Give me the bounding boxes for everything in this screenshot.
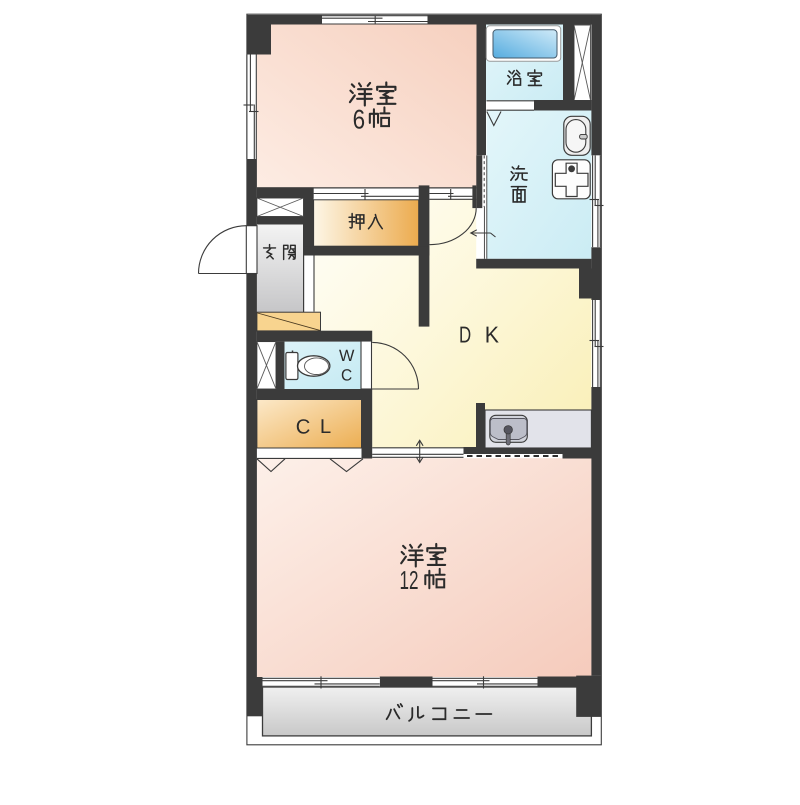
svg-text:C: C bbox=[296, 416, 311, 439]
svg-text:C: C bbox=[341, 366, 352, 384]
svg-text:L: L bbox=[320, 416, 331, 438]
svg-text:W: W bbox=[339, 347, 355, 365]
svg-text:D: D bbox=[459, 322, 471, 348]
svg-text:6: 6 bbox=[353, 104, 366, 134]
svg-text:K: K bbox=[485, 322, 500, 348]
svg-text:12: 12 bbox=[400, 565, 419, 595]
